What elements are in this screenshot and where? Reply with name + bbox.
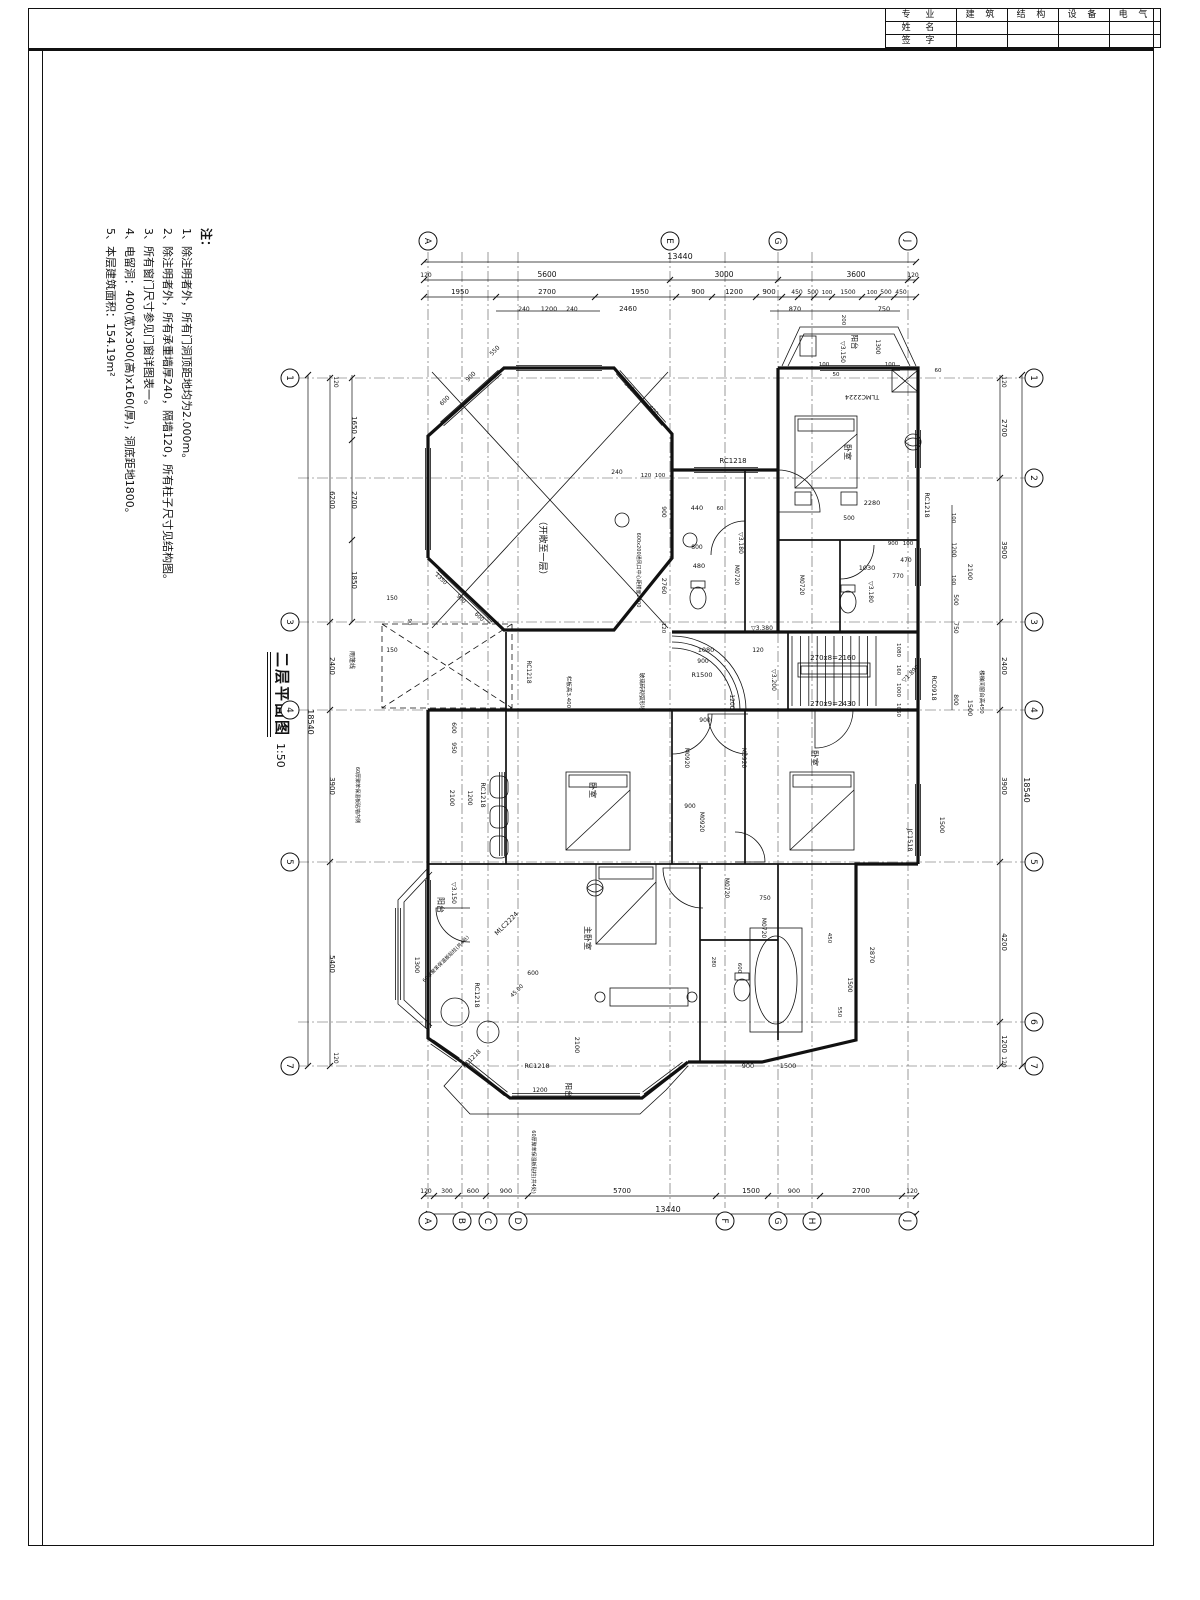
door-swing (815, 710, 853, 748)
dim-label: 900 (500, 1187, 512, 1195)
dim-label: 600 (736, 963, 742, 974)
dim-label: 5600 (537, 270, 556, 279)
dim-label: 500 (880, 289, 892, 296)
dim-label: 3600 (846, 270, 865, 279)
annotation: 玻璃砖砌弧形墙 (638, 673, 646, 712)
dim-label: 6200 (328, 491, 336, 509)
door-swing (778, 470, 820, 512)
room-label: 阳台 (564, 1083, 574, 1098)
furniture-rect (795, 492, 811, 505)
annotation: 栏板高3.400 (565, 676, 573, 709)
window (465, 1064, 505, 1096)
dim-label: 470 (900, 557, 912, 564)
dim-label: 800 (691, 544, 703, 551)
door-swing (840, 545, 874, 579)
dim-label: 120 (660, 623, 666, 634)
dim-label: 120 (332, 1052, 339, 1064)
dim-label: 120 (907, 272, 919, 279)
grid-bubble-label: E (664, 238, 674, 244)
dim-label: 120 (641, 473, 652, 479)
grid-bubble-label: A (422, 238, 432, 245)
dim-label: 1080 (895, 643, 901, 657)
dim-label: 2700 (852, 1187, 870, 1195)
window (444, 374, 502, 426)
furniture-rect (841, 492, 857, 505)
dim-label: 13440 (655, 1205, 680, 1214)
dim-label: 750 (759, 895, 771, 902)
dim-label: 90 (406, 619, 412, 626)
dim-label: 1650 (350, 416, 358, 434)
drawing-sheet: 专 业 建 筑 结 构 设 备 电 气 姓 名 签 字 注： 1、除注明者外，所… (0, 0, 1200, 1600)
furniture-rect (610, 988, 688, 1006)
wall (462, 1062, 688, 1098)
dim-label: 2280 (864, 499, 881, 507)
dim-label: 870 (789, 305, 801, 313)
dim-label: 600 (450, 722, 457, 734)
dim-label: 100 (950, 575, 956, 586)
dim-label: 3900 (328, 777, 336, 795)
toilet (734, 979, 750, 1001)
dim-label: 5400 (328, 955, 336, 973)
dim-label: 13440 (667, 252, 692, 261)
dim-label: 900 (660, 506, 667, 518)
window (616, 374, 662, 426)
window (618, 372, 664, 424)
dim-label: 3000 (714, 270, 733, 279)
dim-label: 750 (952, 622, 959, 634)
bathtub-basin (755, 936, 797, 1024)
window (432, 1042, 458, 1060)
dim-label: 2870 (868, 947, 876, 964)
dim-label: 160 (895, 665, 901, 676)
grid-bubble-label: D (512, 1218, 522, 1225)
bed-cover-line (790, 790, 854, 850)
dim-label: 1500 (742, 1187, 760, 1195)
annotation: 楼梯间窗台高450 (978, 670, 986, 714)
fixture-circle (595, 992, 605, 1002)
dim-label: 150 (386, 595, 398, 602)
dim-label: 2700 (538, 288, 556, 296)
dim-label: 150 (386, 647, 398, 654)
grid-bubble-label: 1 (1028, 375, 1038, 381)
dim-label: 450 (895, 289, 907, 296)
dim-label: 900 (464, 370, 477, 383)
grid-bubble-label: A (422, 1218, 432, 1225)
grid-bubble-label: 1 (284, 375, 294, 381)
dim-label: 900 (684, 803, 696, 810)
dim-label: 2100 (573, 1037, 581, 1054)
dim-label: 1060 (895, 703, 901, 717)
window (440, 568, 494, 620)
dim-label: 1500 (846, 977, 853, 992)
opening-code: M0720 (798, 575, 805, 596)
dim-label: 3900 (1000, 777, 1008, 795)
dim-label: 1950 (451, 288, 469, 296)
dim-label: 1080 (698, 646, 715, 654)
grid-bubble-label: C (482, 1218, 492, 1224)
dim-label: 1500 (966, 700, 974, 717)
grid-bubble-label: J (902, 239, 912, 243)
dim-label: 500 (807, 289, 819, 296)
dim-label: 1200 (728, 694, 735, 709)
dim-label: 2100 (966, 564, 974, 581)
dim-label: 900 (888, 541, 899, 547)
window (438, 570, 492, 622)
bed-cover-line (596, 882, 656, 944)
dim-label: 120 (332, 376, 339, 388)
dim-label: 900 (697, 658, 709, 665)
dim-label: 900 (691, 288, 704, 296)
dim-label: R1500 (691, 671, 712, 679)
dim-label: 100 (819, 362, 830, 368)
room-label: （开敞至一层） (537, 516, 549, 579)
dim-label: 1300 (874, 339, 881, 354)
level-mark: ▽3.180 (737, 532, 744, 554)
grid-bubble-label: B (456, 1218, 466, 1224)
level-mark: ▽3.150 (450, 882, 457, 904)
dim-label: 18540 (1022, 777, 1031, 802)
grid-bubble-label: 3 (1028, 619, 1038, 625)
opening-code: M0720 (733, 565, 740, 586)
dim-label: 100 (867, 290, 878, 296)
grid-bubble-label: 3 (284, 619, 294, 625)
door-swing (663, 868, 703, 908)
dim-label: 900 (788, 1187, 800, 1195)
exhaust-fan-icon (587, 880, 603, 896)
bed (596, 864, 656, 944)
dim-label: 1200 (541, 305, 558, 313)
dim-label: 50 (833, 372, 840, 378)
dim-label: 120 (420, 1188, 432, 1195)
dim-label: 900 (762, 288, 775, 296)
dim-label: 2100 (448, 790, 456, 807)
level-mark: ▽3.150 (839, 341, 846, 363)
dim-label: 2460 (619, 305, 637, 313)
dim-label: 1300 (413, 957, 421, 974)
opening-code: MLC2224 (493, 910, 520, 937)
grid-bubble-label: F (719, 1218, 729, 1223)
annotation: 600x200通风口中心距楼面2300 (635, 533, 642, 608)
grid-bubble-label: G (772, 1218, 782, 1225)
dim-label: 480 (693, 562, 705, 570)
dim-label: 2760 (660, 578, 668, 595)
dim-label: 950 (450, 742, 457, 754)
dim-label: 1850 (350, 571, 358, 589)
window (644, 1064, 684, 1094)
opening-code: JC1518 (906, 828, 914, 852)
bed (790, 772, 854, 850)
grid-bubble-label: 6 (1028, 1019, 1038, 1025)
opening-code: M0920 (683, 748, 690, 769)
dim-label: 1500 (780, 1062, 797, 1070)
grid-bubble-label: 4 (284, 707, 294, 713)
dim-label: 120 (906, 1188, 918, 1195)
wall (778, 368, 918, 864)
wall (782, 327, 916, 366)
grid-bubble-label: 7 (1028, 1063, 1038, 1069)
opening-code: RC1218 (525, 660, 532, 684)
dim-label: 1200 (1000, 1035, 1008, 1053)
opening-code: M0720 (723, 878, 730, 899)
opening-code: M0720 (760, 918, 767, 939)
toilet (840, 591, 856, 613)
bed-pillow (599, 867, 653, 879)
dim-label: 1030 (859, 564, 876, 572)
dim-label: 770 (892, 573, 904, 580)
dim-label: 600 (438, 394, 451, 407)
window (643, 1062, 683, 1092)
grid-bubble-label: 5 (284, 859, 294, 865)
annotation: 60厚聚苯保温板贴柱(共4处) (530, 1130, 537, 1193)
dim-label: 45.00 (510, 983, 526, 999)
exhaust-fan-icon (587, 884, 603, 892)
grid-bubble-label: J (902, 1219, 912, 1223)
level-mark: ▽3.380 (751, 625, 773, 632)
level-mark: ▽3.200 (770, 669, 777, 691)
opening-code: RC1218 (473, 982, 481, 1007)
dim-label: 100 (655, 473, 666, 479)
dim-label: 300 (441, 1188, 453, 1195)
room-label: 卧室 (810, 750, 820, 766)
dim-label: 60 (935, 368, 942, 374)
dim-label: 120 (1000, 1056, 1007, 1068)
dim-label: 600 (467, 1187, 479, 1195)
dim-label: 800 (952, 694, 959, 706)
grid-bubble-label: G (772, 238, 782, 245)
dim-label: 100 (885, 362, 896, 368)
dim-label: 2700 (1000, 419, 1008, 437)
dim-label: 100 (822, 290, 833, 296)
dim-label: 550 (836, 1007, 842, 1018)
furniture-rect (800, 336, 816, 356)
room-label: 阳台 (436, 897, 446, 913)
dim-label: 270x9=2430 (810, 700, 856, 708)
window (467, 1060, 507, 1092)
room-label: 阳台 (850, 335, 860, 350)
bed-pillow (793, 775, 851, 787)
dim-label: 2400 (328, 657, 336, 675)
dim-label: 1200 (466, 790, 473, 805)
bed (566, 772, 630, 850)
dim-label: 440 (691, 504, 703, 512)
opening-code: RC1218 (524, 1062, 549, 1070)
dim-label: 750 (878, 305, 890, 313)
dim-label: 900 (699, 717, 711, 724)
dim-label: 450 (791, 289, 803, 296)
room-label: 卧室 (588, 782, 598, 798)
opening-code: RC1218 (479, 782, 487, 807)
dim-label: 1200 (532, 1087, 547, 1094)
toilet (690, 587, 706, 609)
grid-bubble-label: 7 (284, 1063, 294, 1069)
dim-label: 2700 (350, 491, 358, 509)
dim-label: 120 (420, 272, 432, 279)
dim-label: 600 (527, 970, 539, 977)
dim-label: 18540 (306, 709, 315, 734)
annotation: 雨篷线 (348, 651, 356, 669)
annotation: 60厚聚苯保温板贴墙内侧 (354, 767, 361, 823)
dim-label: 1950 (631, 288, 649, 296)
dim-label: 3900 (1000, 541, 1008, 559)
dim-label: 1200 (950, 542, 957, 557)
window (466, 1062, 506, 1094)
opening-code: M0920 (740, 748, 747, 769)
grid-bubble-label: 2 (1028, 475, 1038, 481)
dim-label: 120 (752, 647, 764, 654)
room-label: 卧室 (843, 444, 853, 460)
bed-cover-line (795, 434, 857, 488)
dim-label: 500 (843, 515, 855, 522)
dim-label: 550 (488, 344, 501, 357)
window (645, 1066, 685, 1096)
level-mark: ▽3.180 (867, 581, 874, 603)
door-swing (735, 832, 765, 862)
dim-label: 500 (952, 594, 959, 606)
dim-label: 1500 (938, 817, 946, 834)
dim-label: 200 (840, 315, 846, 326)
dim-label: 2400 (1000, 657, 1008, 675)
room-label: 主卧室 (583, 926, 593, 950)
dim-label: 120 (1000, 376, 1007, 388)
dim-label: 1000 (895, 683, 901, 697)
dim-label: 60 (717, 506, 724, 512)
dim-label: 5700 (613, 1187, 631, 1195)
dim-label: 1200 (725, 288, 743, 296)
dim-label: 240 (566, 306, 578, 313)
dim-label: 240 (611, 469, 623, 476)
opening-code: RC1218 (923, 492, 931, 517)
fixture-circle (687, 992, 697, 1002)
grid-bubble-label: 4 (1028, 707, 1038, 713)
bed-cover-line (566, 790, 630, 850)
floor-plan-svg: AEGJABCDFGHJ1345712345671344012056003000… (0, 0, 1200, 1600)
opening-code: M0920 (698, 812, 705, 833)
opening-code: RC1218 (719, 457, 746, 465)
grid-bubble-label: H (806, 1218, 816, 1225)
opening-code: TLMC2224 (845, 393, 880, 401)
opening-code: RC0918 (930, 675, 938, 700)
dim-label: 100 (950, 513, 956, 524)
bed-pillow (798, 419, 854, 431)
dim-label: 1500 (840, 289, 855, 296)
dim-label: 100 (903, 541, 914, 547)
grid-bubble-label: 5 (1028, 859, 1038, 865)
dim-label: 270x8=2160 (810, 654, 856, 662)
bed-pillow (569, 775, 627, 787)
dim-label: 280 (710, 957, 716, 968)
dim-label: 450 (826, 933, 832, 944)
bathtub (750, 928, 802, 1032)
dim-label: 240 (518, 306, 530, 313)
wall (688, 864, 918, 1062)
dim-label: 4200 (1000, 933, 1008, 951)
dim-label: 900 (742, 1062, 754, 1070)
fixture-circle (615, 513, 629, 527)
